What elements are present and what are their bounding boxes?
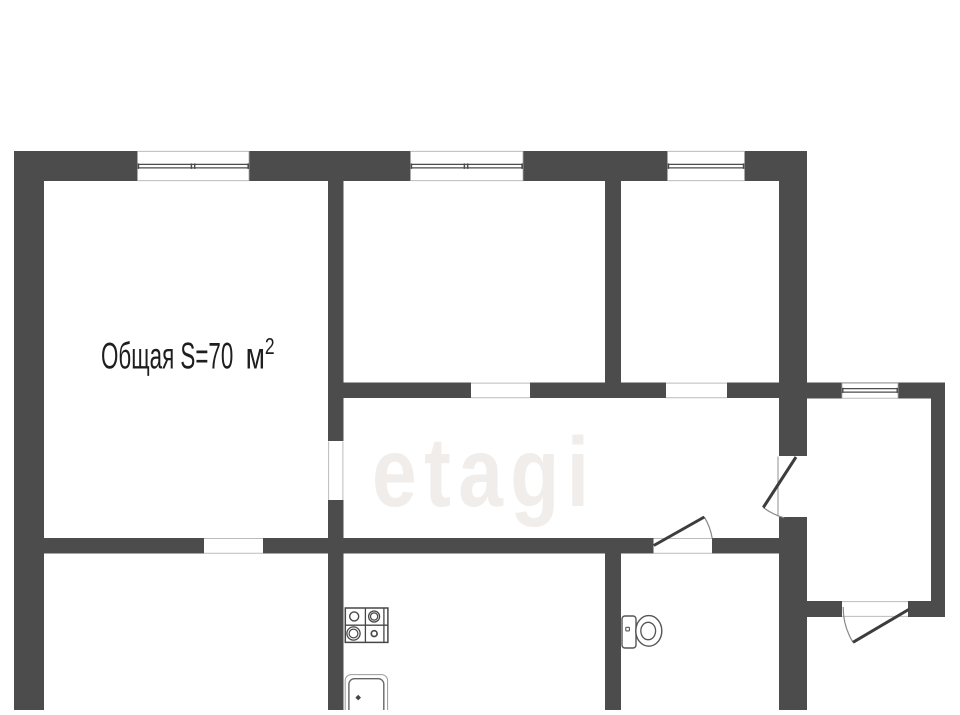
svg-text:Общая S=70: Общая S=70 — [101, 336, 233, 377]
svg-text:etagi: etagi — [372, 417, 596, 526]
